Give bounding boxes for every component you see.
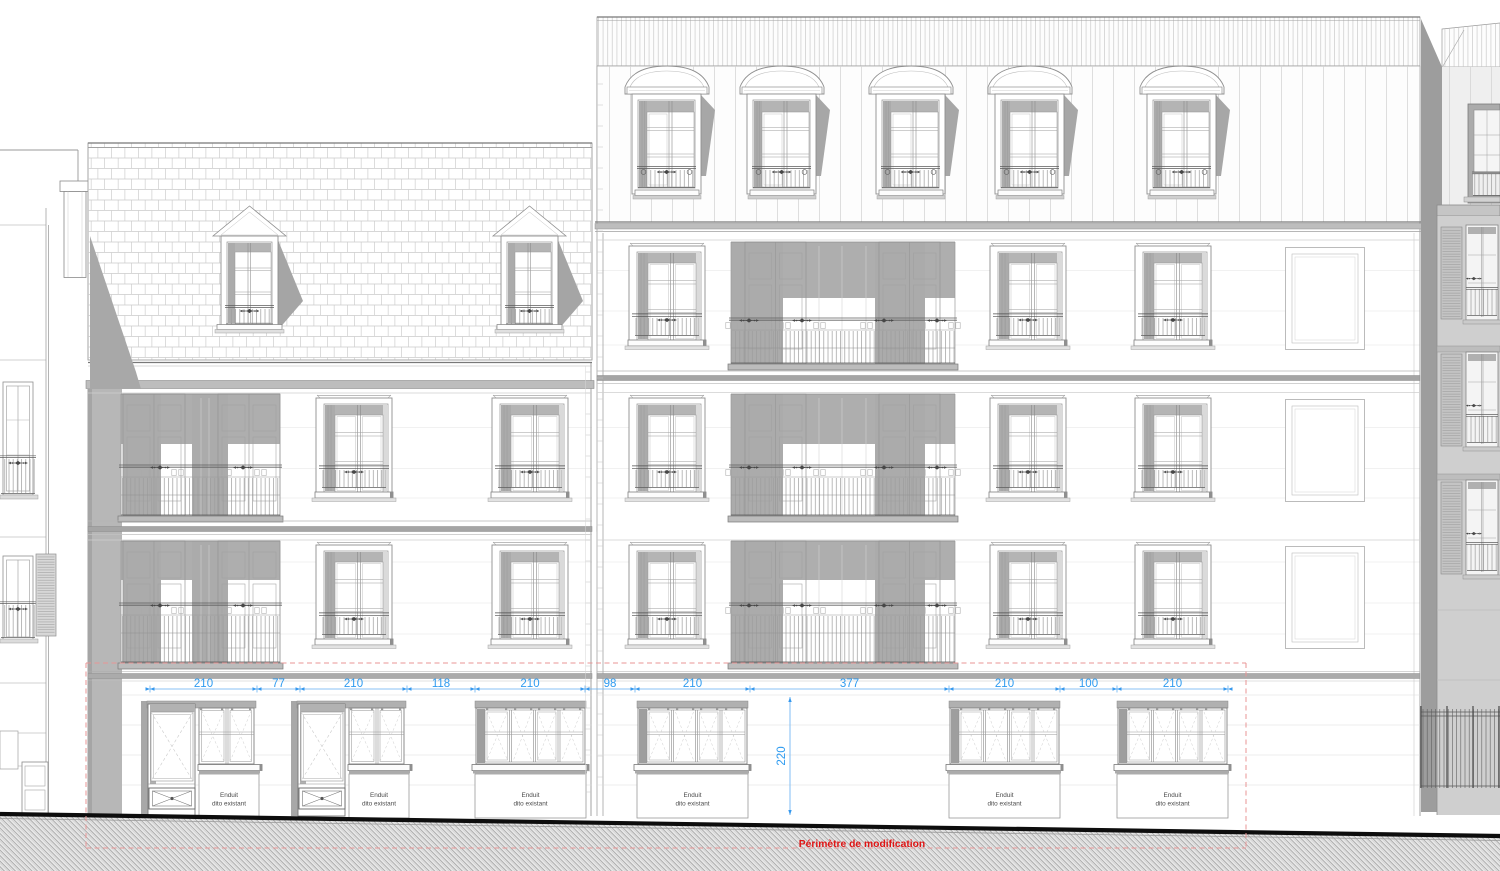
svg-text:Périmètre de modification: Périmètre de modification (799, 839, 925, 850)
svg-text:77: 77 (272, 678, 285, 690)
svg-text:210: 210 (683, 678, 702, 690)
svg-text:210: 210 (344, 678, 363, 690)
svg-text:100: 100 (1079, 678, 1098, 690)
svg-text:118: 118 (432, 678, 450, 690)
svg-text:210: 210 (520, 678, 539, 690)
svg-text:220: 220 (776, 746, 788, 765)
svg-text:210: 210 (194, 678, 213, 690)
svg-text:377: 377 (840, 678, 859, 690)
svg-text:98: 98 (604, 678, 617, 690)
svg-text:210: 210 (995, 678, 1014, 690)
svg-text:210: 210 (1163, 678, 1182, 690)
